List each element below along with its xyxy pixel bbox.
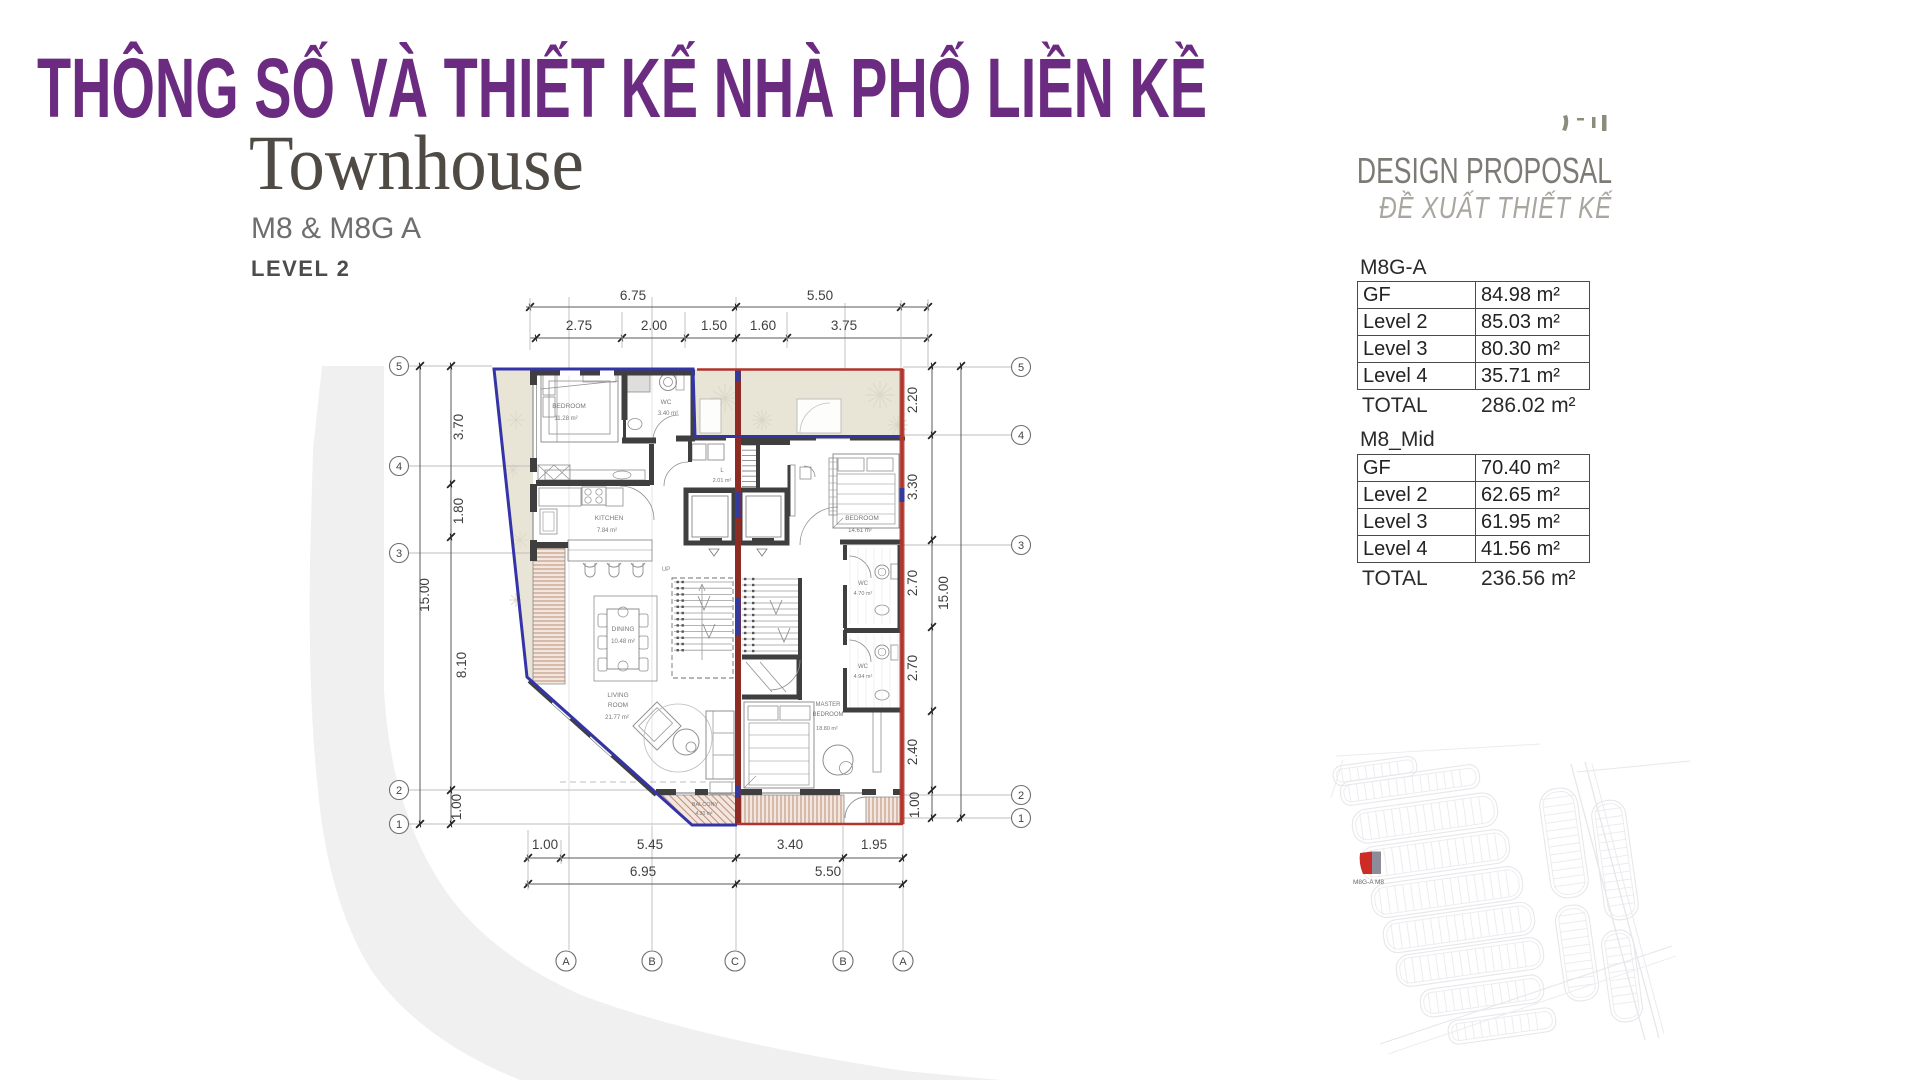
svg-text:MASTER: MASTER [815, 702, 841, 708]
svg-text:LIVING: LIVING [607, 692, 628, 699]
svg-text:3.75: 3.75 [831, 318, 857, 333]
svg-text:ROOM: ROOM [608, 702, 628, 709]
svg-text:A: A [899, 956, 907, 968]
svg-text:4.30 m²: 4.30 m² [696, 811, 713, 817]
svg-text:2.70: 2.70 [905, 570, 920, 596]
svg-text:BALCONY: BALCONY [692, 802, 719, 808]
svg-text:2.75: 2.75 [566, 318, 592, 333]
svg-text:1.00: 1.00 [907, 792, 922, 818]
svg-text:1.80: 1.80 [451, 498, 466, 524]
svg-text:10.48 m²: 10.48 m² [611, 639, 635, 645]
svg-text:5.50: 5.50 [815, 864, 841, 879]
svg-text:6.95: 6.95 [630, 864, 656, 879]
svg-text:BEDROOM: BEDROOM [552, 403, 586, 410]
svg-text:M8: M8 [1375, 879, 1384, 886]
svg-text:3.70: 3.70 [451, 414, 466, 440]
svg-text:WC: WC [661, 399, 672, 406]
svg-text:2: 2 [396, 785, 402, 797]
svg-text:DINING: DINING [612, 626, 635, 633]
svg-text:M8G-A: M8G-A [1353, 879, 1374, 886]
svg-text:KITCHEN: KITCHEN [595, 515, 624, 522]
svg-text:WC: WC [858, 581, 869, 587]
svg-text:3.40 m²: 3.40 m² [658, 411, 678, 417]
svg-text:1.00: 1.00 [449, 794, 464, 820]
svg-text:4.70 m²: 4.70 m² [854, 591, 873, 597]
svg-text:15.00: 15.00 [936, 576, 951, 610]
svg-text:14.61 m²: 14.61 m² [848, 528, 872, 534]
svg-text:WC: WC [858, 664, 869, 670]
svg-text:2: 2 [1018, 790, 1024, 802]
svg-text:2.01 m²: 2.01 m² [713, 478, 732, 484]
svg-text:3: 3 [396, 548, 402, 560]
svg-text:7.84 m²: 7.84 m² [597, 528, 617, 534]
svg-text:5.50: 5.50 [807, 288, 833, 303]
svg-text:1.00: 1.00 [532, 837, 558, 852]
svg-text:15.00: 15.00 [417, 578, 432, 612]
svg-text:1: 1 [396, 819, 402, 831]
svg-text:B: B [839, 956, 846, 968]
svg-text:2.20: 2.20 [905, 387, 920, 413]
svg-text:3.30: 3.30 [905, 474, 920, 500]
svg-text:4.94 m²: 4.94 m² [854, 674, 873, 680]
svg-text:2.40: 2.40 [905, 739, 920, 765]
svg-text:1: 1 [1018, 813, 1024, 825]
svg-text:3: 3 [1018, 540, 1024, 552]
svg-text:8.10: 8.10 [454, 652, 469, 678]
svg-text:1.95: 1.95 [861, 837, 887, 852]
svg-text:BEDROOM: BEDROOM [812, 712, 843, 718]
svg-text:4: 4 [1018, 430, 1024, 442]
svg-text:2.70: 2.70 [905, 655, 920, 681]
svg-text:UP: UP [662, 567, 670, 573]
svg-text:3.40: 3.40 [777, 837, 803, 852]
svg-text:L: L [720, 468, 724, 474]
svg-text:18.80 m²: 18.80 m² [816, 726, 838, 732]
svg-text:5: 5 [396, 361, 402, 373]
svg-text:4: 4 [396, 461, 402, 473]
svg-text:B: B [648, 956, 655, 968]
svg-text:5: 5 [1018, 362, 1024, 374]
svg-text:5.45: 5.45 [637, 837, 663, 852]
svg-text:1.60: 1.60 [750, 318, 776, 333]
svg-text:6.75: 6.75 [620, 288, 646, 303]
svg-text:C: C [731, 956, 739, 968]
svg-text:11.28 m²: 11.28 m² [554, 416, 577, 422]
svg-text:BEDROOM: BEDROOM [845, 515, 879, 522]
svg-text:21.77 m²: 21.77 m² [605, 715, 629, 721]
svg-text:2.00: 2.00 [641, 318, 667, 333]
svg-text:A: A [562, 956, 570, 968]
svg-text:1.50: 1.50 [701, 318, 727, 333]
